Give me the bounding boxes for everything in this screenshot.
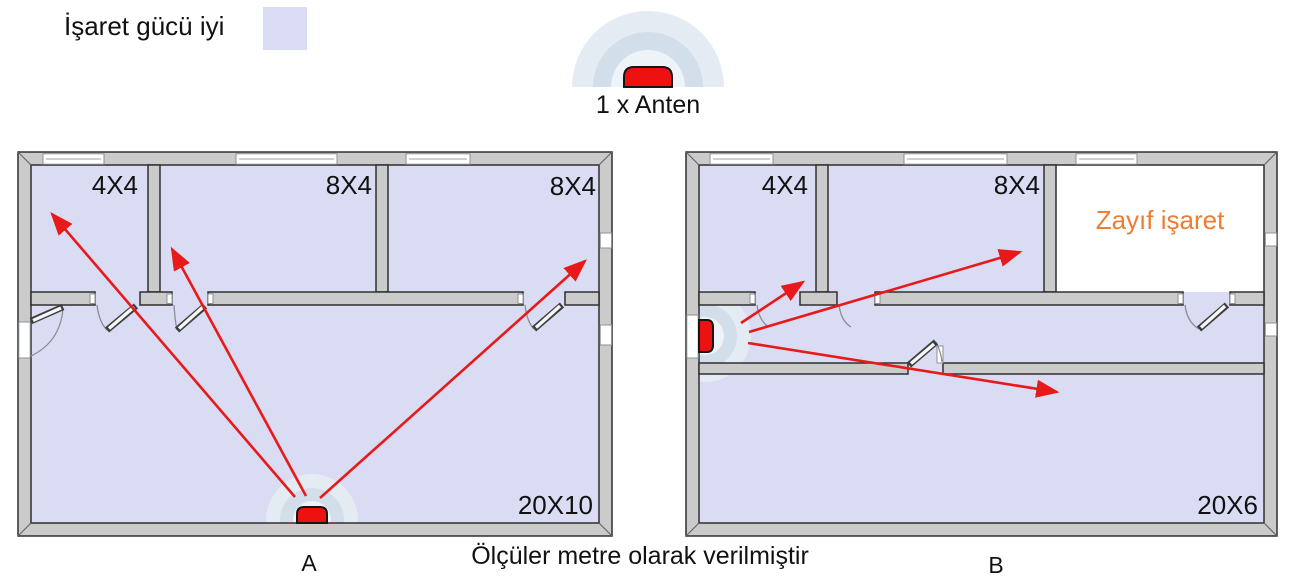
plan-b-room-label-20x6: 20X6 (1148, 492, 1258, 519)
wifi-coverage-diagram: İşaret gücü iyi 1 x Anten 4X4 8X4 8X4 20… (0, 0, 1300, 576)
plan-a-letter: A (289, 551, 329, 575)
plan-b-antenna-niche (687, 315, 698, 358)
signal-good-swatch (263, 7, 307, 50)
plan-b-weak-signal-label: Zayıf işaret (1058, 207, 1262, 234)
plan-b-letter: B (976, 553, 1016, 576)
plan-a-room-label-4x4: 4X4 (60, 172, 138, 199)
plan-a-room-label-8x4-2: 8X4 (518, 173, 596, 200)
antenna-count-label: 1 x Anten (578, 92, 718, 118)
plan-b-room-label-8x4: 8X4 (962, 172, 1040, 199)
units-caption: Ölçüler metre olarak verilmiştir (410, 543, 870, 569)
antenna-icon (699, 320, 713, 352)
plan-a-room-label-20x10: 20X10 (483, 492, 593, 519)
legend-label: İşaret gücü iyi (64, 13, 224, 40)
antenna-icon (624, 67, 672, 87)
floorplan-graphics (0, 0, 1300, 576)
plan-a-room-label-8x4-1: 8X4 (294, 172, 372, 199)
antenna-icon (297, 507, 327, 523)
plan-b-room-label-4x4: 4X4 (730, 172, 808, 199)
plan-a-floor (31, 165, 599, 523)
